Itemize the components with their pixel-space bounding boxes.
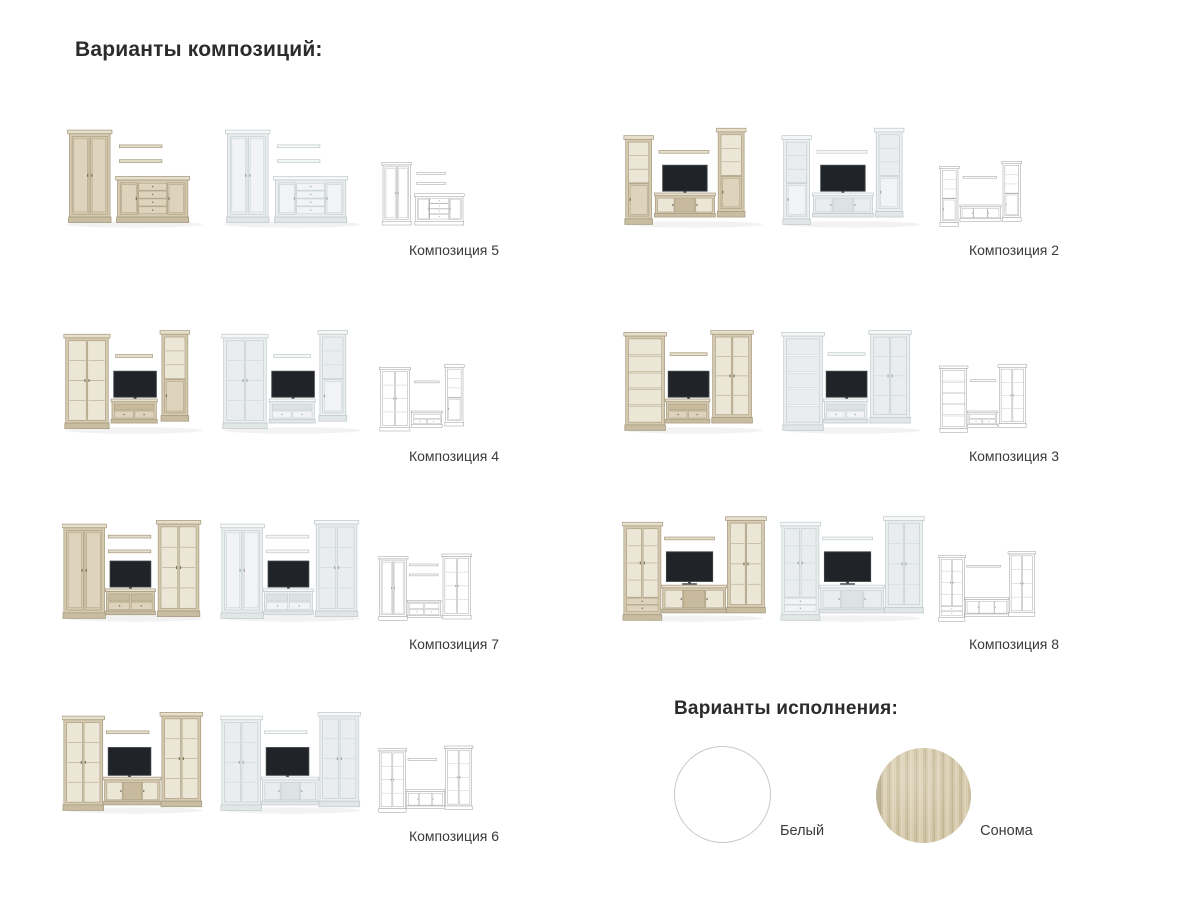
composition-render-line-scheme	[938, 146, 1038, 230]
composition-block-8: Композиция 8	[622, 506, 1038, 624]
composition-render-white	[220, 698, 368, 816]
finishes-row: Белый Сонома	[674, 746, 1104, 843]
composition-scheme-column: Композиция 7	[378, 540, 478, 624]
composition-render-sonoma	[62, 112, 210, 230]
finish-label-sonoma: Сонома	[980, 823, 1033, 843]
composition-block-3: Композиция 3	[622, 318, 1038, 436]
sonoma-finish-swatch	[876, 748, 971, 843]
composition-scheme-column: Композиция 6	[378, 732, 478, 816]
composition-render-line-scheme	[378, 732, 478, 816]
composition-render-white	[220, 112, 368, 230]
composition-scheme-column: Композиция 4	[378, 352, 478, 436]
composition-render-line-scheme	[378, 352, 478, 436]
finishes-section: Варианты исполнения: Белый Сонома	[674, 698, 1104, 843]
composition-label: Композиция 7	[404, 636, 504, 652]
composition-scheme-column: Композиция 5	[378, 146, 478, 230]
composition-label: Композиция 3	[964, 448, 1064, 464]
composition-render-line-scheme	[938, 540, 1038, 624]
composition-scheme-column: Композиция 2	[938, 146, 1038, 230]
composition-render-white	[220, 506, 368, 624]
finish-option-sonoma: Сонома	[876, 746, 1033, 843]
composition-label: Композиция 4	[404, 448, 504, 464]
finish-option-white: Белый	[674, 746, 824, 843]
composition-render-sonoma	[622, 506, 770, 624]
finishes-title: Варианты исполнения:	[674, 698, 1104, 720]
composition-render-white	[780, 318, 928, 436]
finish-label-white: Белый	[780, 823, 824, 843]
composition-scheme-column: Композиция 3	[938, 352, 1038, 436]
composition-render-sonoma	[622, 318, 770, 436]
composition-block-2: Композиция 2	[622, 112, 1038, 230]
composition-block-6: Композиция 6	[62, 698, 478, 816]
catalog-page: Варианты композиций: Композиция 5Компози…	[0, 0, 1200, 900]
composition-label: Композиция 8	[964, 636, 1064, 652]
composition-render-sonoma	[62, 318, 210, 436]
composition-render-white	[220, 318, 368, 436]
composition-block-4: Композиция 4	[62, 318, 478, 436]
composition-render-line-scheme	[378, 146, 478, 230]
composition-label: Композиция 2	[964, 242, 1064, 258]
composition-block-5: Композиция 5	[62, 112, 478, 230]
composition-scheme-column: Композиция 8	[938, 540, 1038, 624]
composition-render-sonoma	[62, 506, 210, 624]
composition-label: Композиция 5	[404, 242, 504, 258]
composition-render-white	[780, 506, 928, 624]
composition-render-sonoma	[622, 112, 770, 230]
composition-block-7: Композиция 7	[62, 506, 478, 624]
composition-render-sonoma	[62, 698, 210, 816]
composition-label: Композиция 6	[404, 828, 504, 844]
composition-render-line-scheme	[378, 540, 478, 624]
composition-render-line-scheme	[938, 352, 1038, 436]
composition-render-white	[780, 112, 928, 230]
white-finish-swatch	[674, 746, 771, 843]
